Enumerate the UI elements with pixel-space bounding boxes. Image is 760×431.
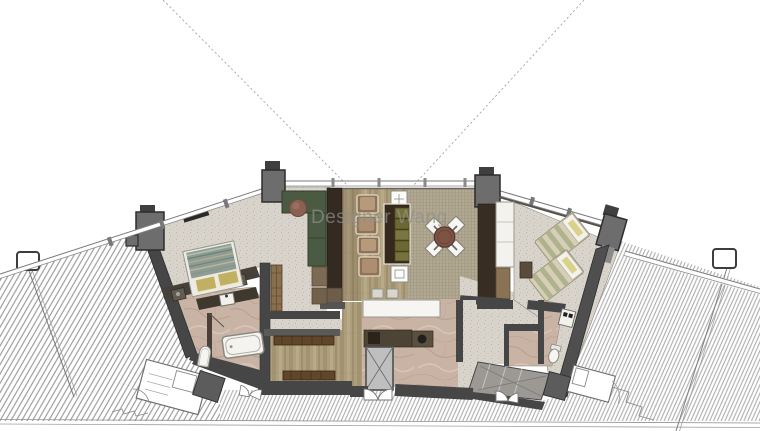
svg-text:Designer Wang: Designer Wang: [311, 207, 448, 228]
